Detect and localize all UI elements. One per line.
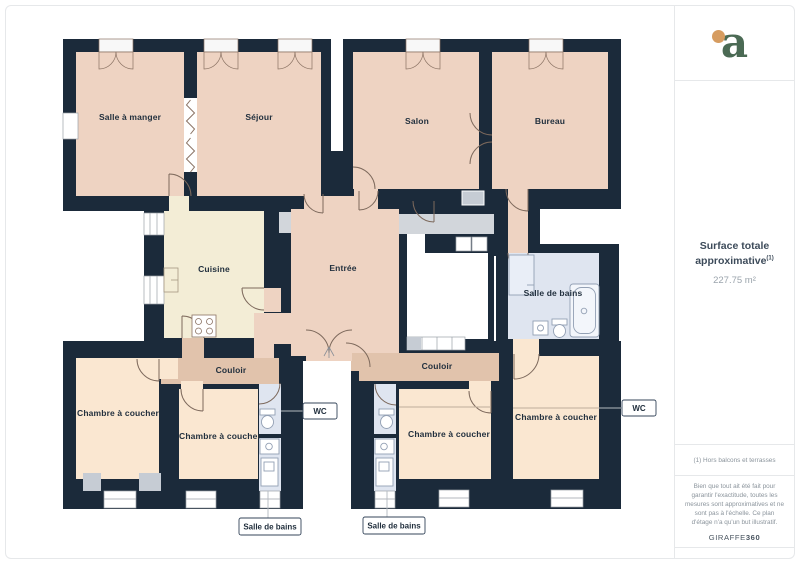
salle-de-bains-right-label: Salle de bains — [367, 522, 421, 531]
disclaimer-text: Bien que tout ait été fait pour garantir… — [684, 483, 785, 528]
surface-title: Surface totale approximative(1) — [695, 239, 774, 268]
label-couloir-right: Couloir — [422, 361, 453, 371]
label-bureau: Bureau — [535, 116, 565, 126]
sink-icon — [533, 321, 548, 335]
label-salon: Salon — [405, 116, 429, 126]
label-entree: Entrée — [329, 263, 356, 273]
brand-number: 360 — [746, 533, 760, 542]
sink-icon — [375, 439, 394, 454]
wc-right-label: WC — [632, 404, 646, 413]
label-couloir-left: Couloir — [216, 365, 247, 375]
label-sejour: Séjour — [245, 112, 273, 122]
kitchen-counter-icon — [164, 268, 178, 292]
surface-note-ref: (1) — [766, 255, 773, 261]
logo-section: a — [675, 6, 794, 81]
shower-icon — [261, 458, 278, 486]
toilet-icon — [260, 409, 275, 429]
surface-title-line2: approximative — [695, 255, 766, 267]
logo-letter: a — [721, 18, 748, 67]
label-cuisine: Cuisine — [198, 264, 230, 274]
room-chambre-1 — [76, 358, 159, 479]
shower-icon — [376, 458, 393, 486]
surface-value: 227.75 m² — [713, 275, 756, 286]
brand-wordmark: GIRAFFE360 — [684, 533, 785, 542]
sidebar: a Surface totale approximative(1) 227.75… — [674, 6, 794, 558]
label-salle-de-bains: Salle de bains — [524, 288, 583, 298]
surface-section: Surface totale approximative(1) 227.75 m… — [675, 81, 794, 444]
room-sejour — [197, 52, 321, 196]
label-chambre-2: Chambre à coucher — [179, 431, 261, 441]
floorplan-svg: WC WC Salle de bains Salle de bains Sall… — [7, 7, 675, 559]
label-salle-a-manger: Salle à manger — [99, 112, 162, 122]
wc-left-label: WC — [313, 407, 327, 416]
page-frame: WC WC Salle de bains Salle de bains Sall… — [5, 5, 795, 559]
sidebar-spacer — [675, 548, 794, 558]
label-chambre-3: Chambre à coucher — [408, 429, 490, 439]
brand-logo-icon: a — [721, 22, 748, 64]
sink-icon — [260, 439, 279, 454]
toilet-icon — [379, 409, 394, 429]
salle-de-bains-left-label: Salle de bains — [243, 523, 297, 532]
room-entree — [291, 196, 399, 356]
toilet-icon — [552, 319, 567, 338]
surface-title-line1: Surface totale — [700, 240, 769, 252]
logo-dot-icon — [712, 30, 725, 43]
room-white — [407, 253, 488, 339]
brand-name: GIRAFFE — [709, 533, 746, 542]
label-chambre-1: Chambre à coucher — [77, 408, 159, 418]
surface-footnote: (1) Hors balcons et terrasses — [675, 444, 794, 475]
disclaimer-section: Bien que tout ait été fait pour garantir… — [675, 475, 794, 548]
label-chambre-4: Chambre à coucher — [515, 412, 597, 422]
wall-break-zigzag — [184, 98, 197, 172]
stove-icon — [192, 315, 216, 337]
room-salle-a-manger — [76, 52, 184, 196]
corridor-gray — [399, 214, 494, 234]
